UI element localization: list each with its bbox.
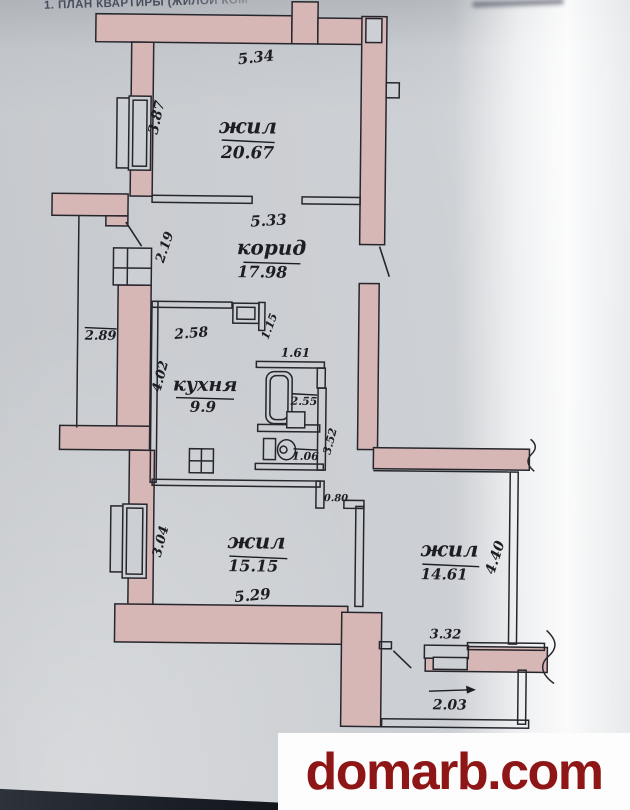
room-area-living-left: 15.15 [228, 556, 278, 576]
dim-corridor-width: 5.33 [250, 210, 288, 230]
dim-right-room-depth: 4.40 [483, 539, 509, 577]
balcony-door-block [424, 645, 468, 658]
dim-inner-hall: 3.52 [321, 426, 340, 456]
hall-door [379, 247, 389, 277]
dim-bath-length: 2.55 [290, 395, 318, 408]
room-label-corridor: корид [237, 235, 307, 260]
dim-left-side: 2.89 [84, 329, 117, 344]
balcony-window [433, 657, 467, 669]
dim-top-width: 5.34 [237, 46, 275, 68]
floor-plan-drawing: жил 20.67 корид 17.98 кухня 9.9 жил 15.1… [0, 0, 630, 810]
room-label-living-top: жил [219, 113, 277, 139]
arrow-head [466, 686, 476, 694]
room-label-living-left: жил [227, 528, 285, 554]
watermark-box: domarb.com [278, 733, 630, 810]
room-label-living-right: жил [420, 536, 478, 562]
dim-niche: 1.15 [259, 311, 281, 341]
dim-right-room-width: 3.32 [430, 627, 462, 642]
dim-kitchen-depth: 4.02 [150, 359, 172, 393]
dim-kitchen-width: 2.58 [173, 324, 209, 343]
wall-niche [386, 83, 399, 98]
entrance-door [126, 222, 142, 246]
dim-balcony-width: 2.03 [432, 697, 468, 713]
floor-plan-photo: 1. ПЛАН КВАРТИРЫ (ЖИЛОЙ КОМ [0, 0, 630, 810]
room-labels: жил 20.67 корид 17.98 кухня 9.9 жил 15.1… [171, 113, 484, 584]
room-area-kitchen: 9.9 [190, 398, 217, 416]
dim-wc-width: 1.06 [292, 450, 319, 463]
room-area-living-right: 14.61 [421, 565, 468, 583]
hall-closet [113, 248, 151, 285]
corner-gap [366, 19, 382, 43]
room-label-kitchen: кухня [173, 374, 238, 397]
balcony-door [393, 651, 411, 668]
toilet-tank [263, 438, 275, 459]
sink [287, 412, 305, 428]
dim-corridor-depth: 2.19 [153, 230, 178, 266]
watermark-text: domarb.com [305, 746, 602, 798]
dim-bath-width: 1.61 [281, 346, 310, 360]
dim-left-room-width: 5.29 [233, 585, 272, 606]
room-area-living-top: 20.67 [220, 143, 275, 164]
dim-passage: 0.80 [324, 493, 349, 504]
room-area-corridor: 17.98 [237, 262, 287, 282]
